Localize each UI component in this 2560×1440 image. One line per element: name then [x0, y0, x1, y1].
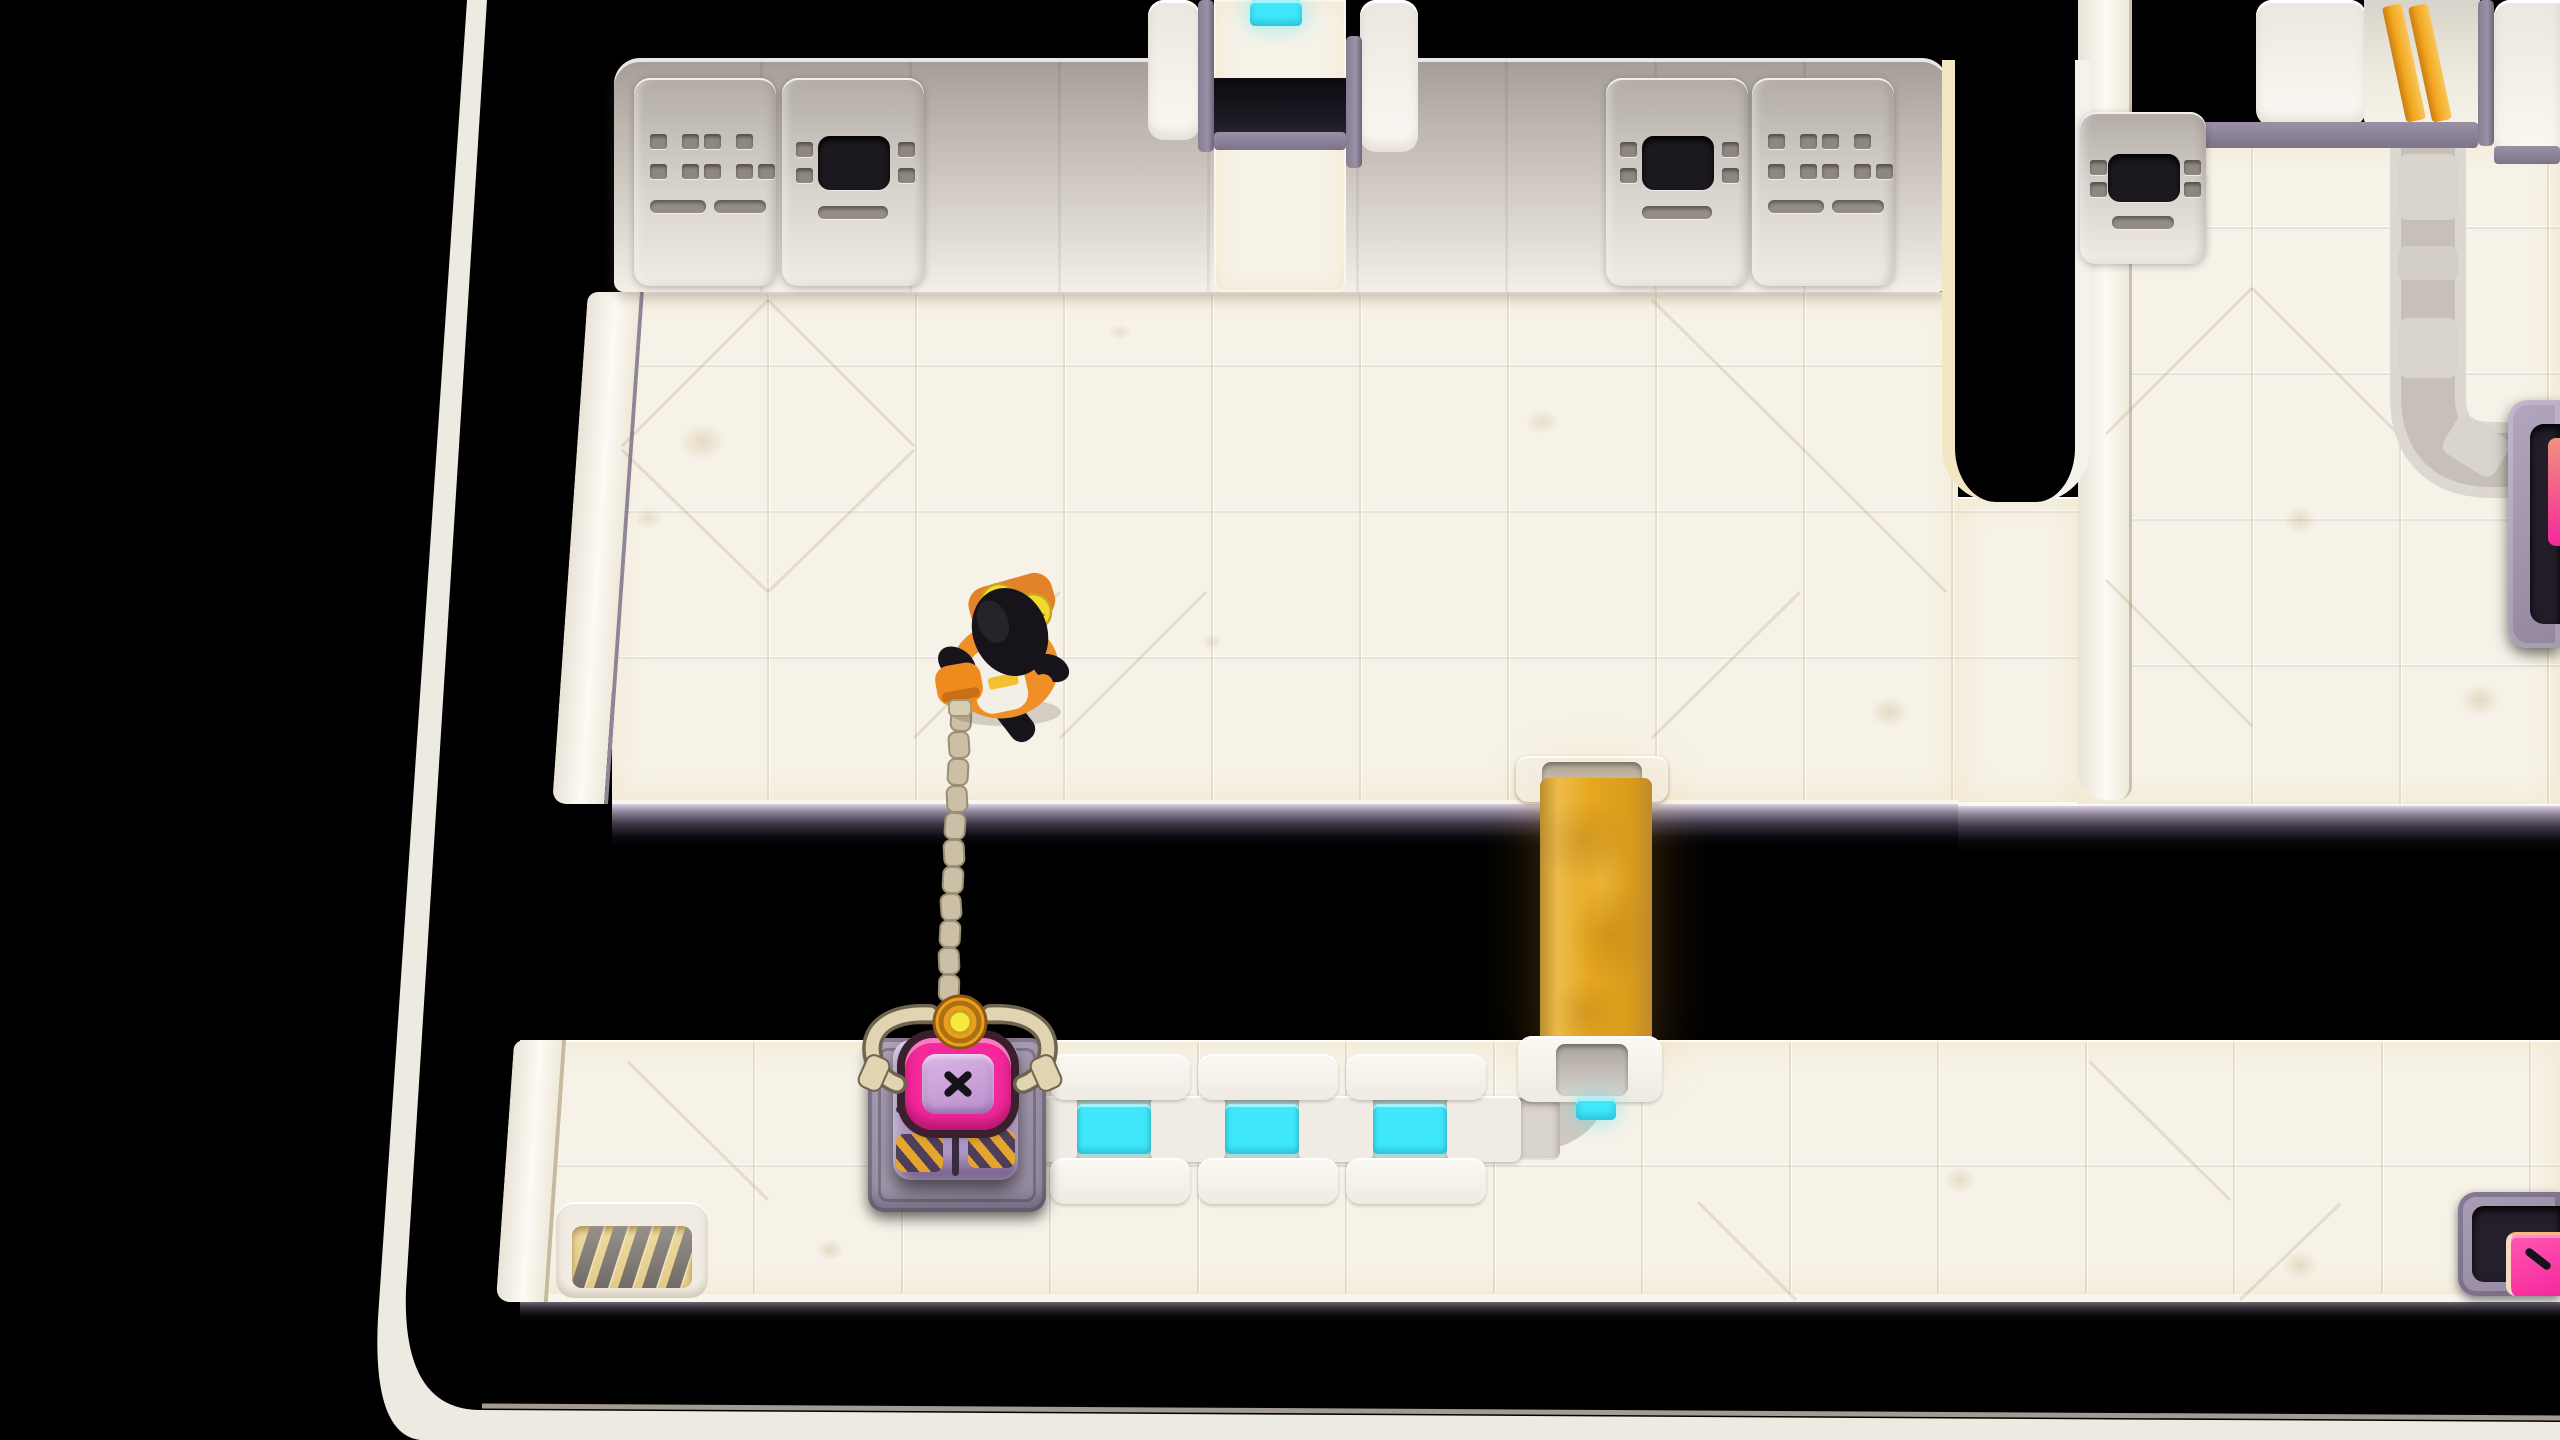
- game-viewport[interactable]: [0, 0, 2560, 1440]
- player-glove: [1033, 674, 1053, 694]
- actor-layer: [0, 0, 2560, 1440]
- claw-knob: [934, 996, 986, 1048]
- gun-nozzle: [949, 700, 971, 716]
- grapple-chain: [938, 704, 971, 1001]
